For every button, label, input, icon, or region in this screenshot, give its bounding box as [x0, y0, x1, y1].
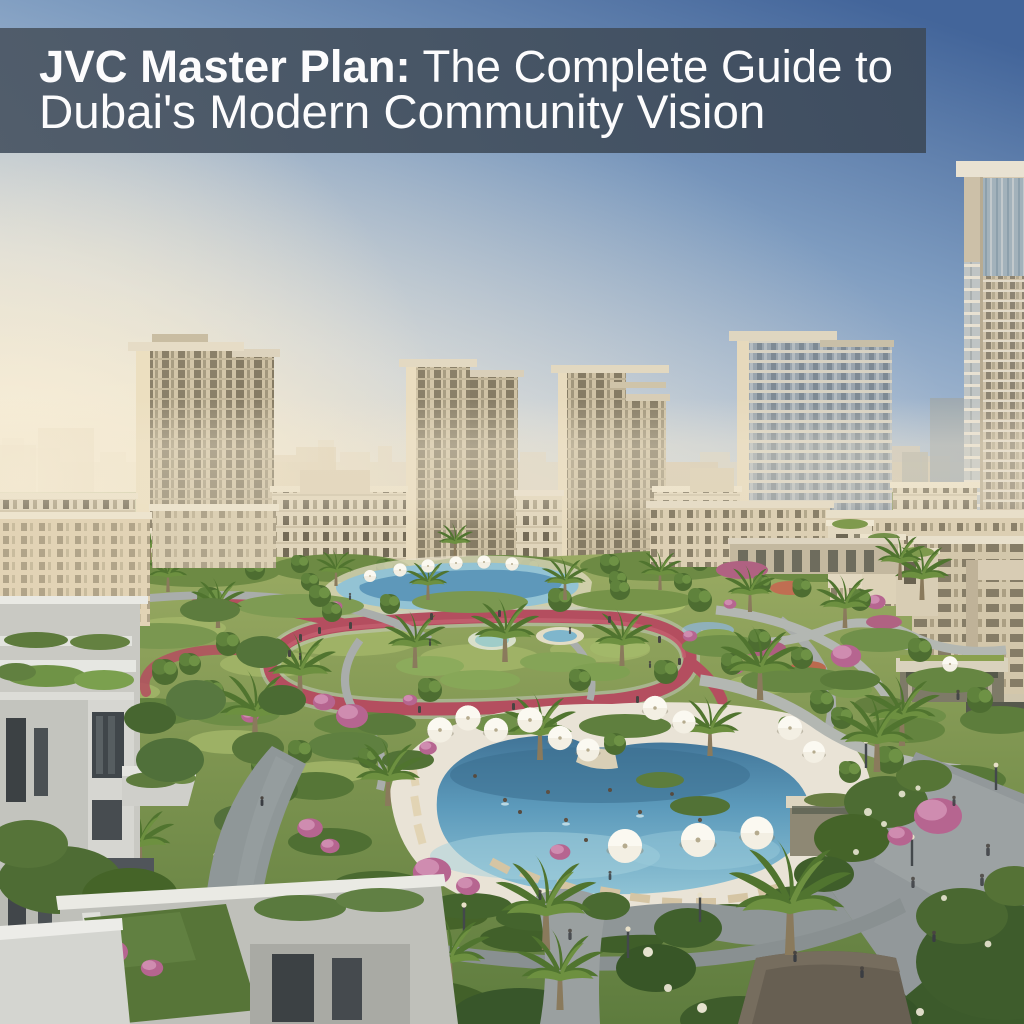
svg-text:Dubai's Modern Community Visio: Dubai's Modern Community Vision [39, 86, 765, 139]
svg-text:JVC Master Plan: The Complete: JVC Master Plan: The Complete Guide to [39, 41, 893, 92]
